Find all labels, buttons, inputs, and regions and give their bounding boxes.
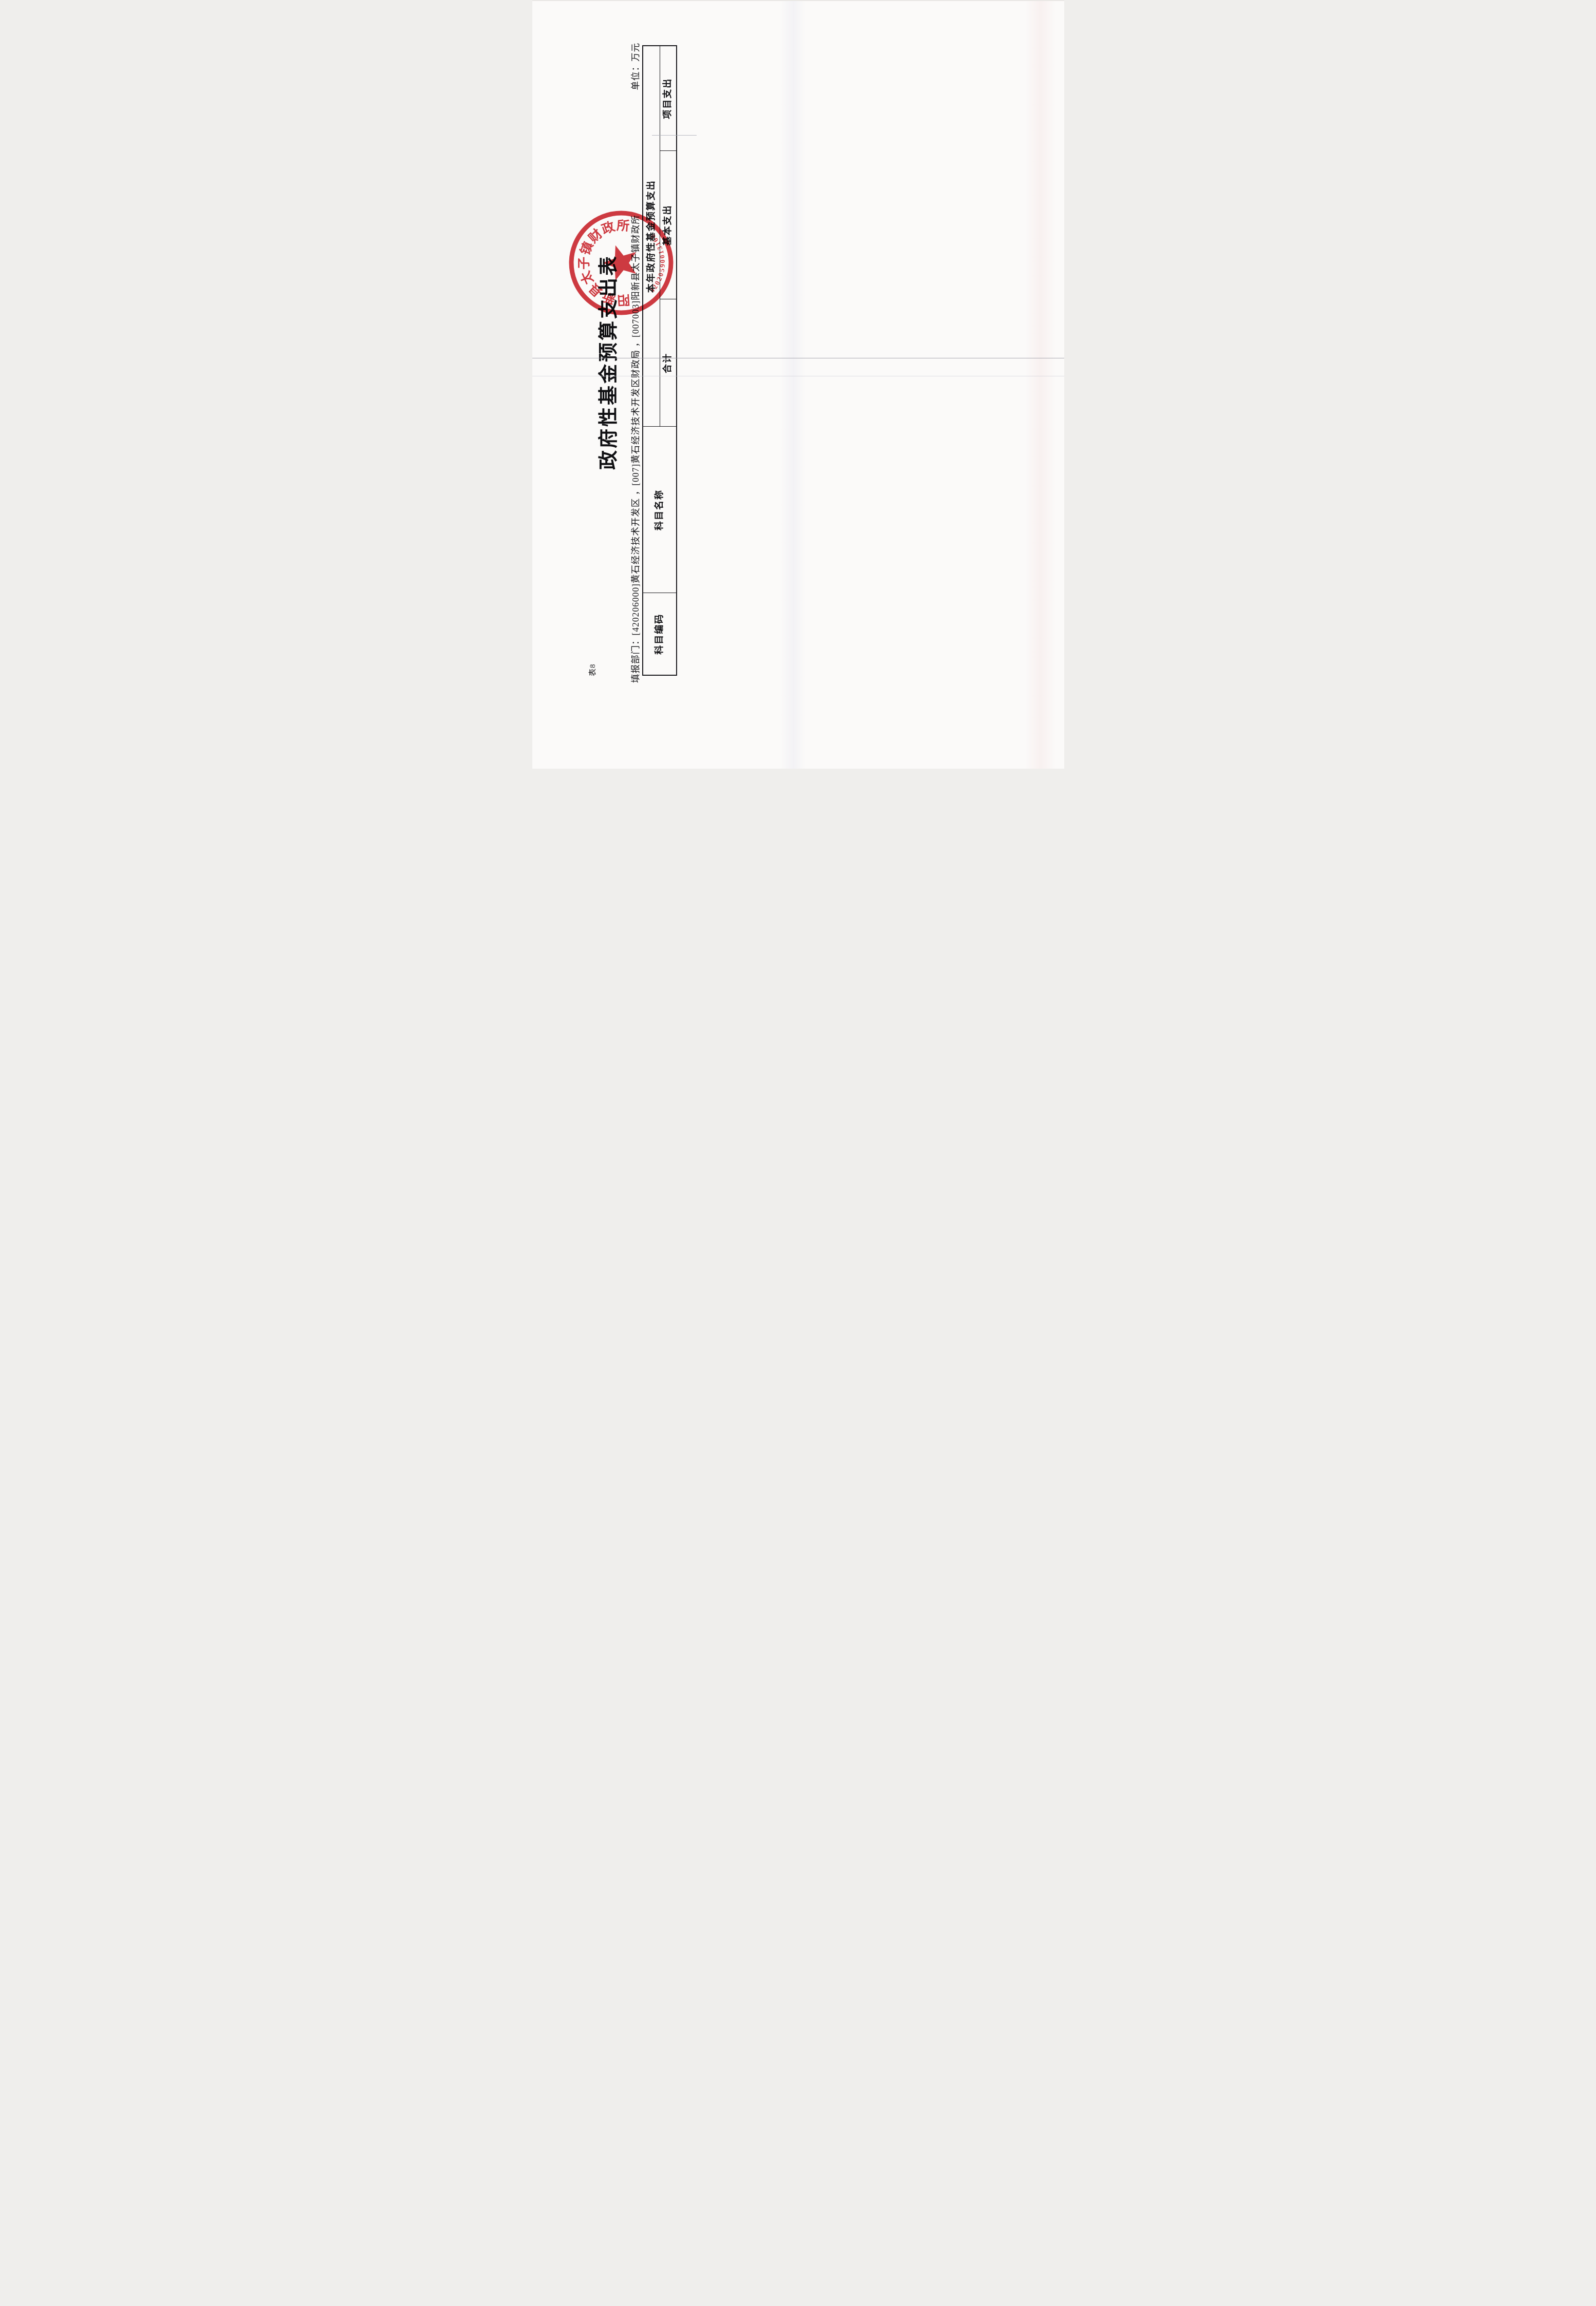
header-group-current-year: 本年政府性基金预算支出	[643, 46, 660, 427]
scanned-page: 表8 政府性基金预算支出表 填报部门：[420206000]黄石经济技术开发区 …	[532, 0, 1064, 769]
header-subject-code: 科目编码	[643, 593, 677, 675]
reporting-department-line: 填报部门：[420206000]黄石经济技术开发区 ，[007]黄石经济技术开发…	[629, 215, 642, 683]
meta-row: 填报部门：[420206000]黄石经济技术开发区 ，[007]黄石经济技术开发…	[629, 43, 642, 683]
unit-label: 单位：万元	[629, 43, 642, 90]
header-total: 合计	[660, 299, 677, 427]
table-header-row-1: 科目编码 科目名称 本年政府性基金预算支出	[643, 46, 660, 675]
budget-table: 科目编码 科目名称 本年政府性基金预算支出 合计 基本支出 项目支出	[642, 45, 677, 676]
header-basic-expenditure: 基本支出	[660, 151, 677, 299]
page-title: 政府性基金预算支出表	[592, 43, 621, 681]
landscape-content: 表8 政府性基金预算支出表 填报部门：[420206000]黄石经济技术开发区 …	[532, 0, 1064, 769]
scan-artifact-line	[652, 135, 697, 136]
header-subject-name: 科目名称	[643, 427, 677, 593]
